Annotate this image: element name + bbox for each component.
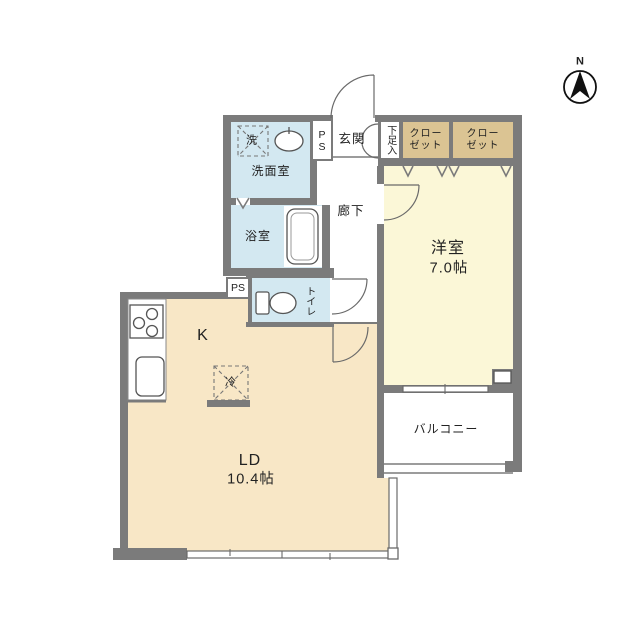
toilet-tank-icon <box>256 292 269 314</box>
washing-machine-label: 洗 <box>246 135 258 148</box>
ld-bottom-window <box>187 551 390 558</box>
ldk-floor <box>128 299 390 553</box>
closet-right-label: クローゼット <box>467 129 500 152</box>
refrigerator-label: 冷 <box>225 377 237 390</box>
corridor-label: 廊下 <box>337 204 364 218</box>
compass-icon <box>564 71 596 103</box>
kitchen-sink-icon <box>136 357 164 396</box>
living-dining-label: LD <box>239 452 261 470</box>
ps-upper-label: PS <box>316 129 328 153</box>
balcony-label: バルコニー <box>414 423 479 437</box>
kitchen-label: K <box>197 327 209 345</box>
floor-plan-drawing <box>0 0 640 640</box>
bathroom-label: 浴室 <box>245 230 271 244</box>
floor-plan: 洗 洗面室 PS 玄関 下足入 クローゼット クローゼット 浴室 廊下 洋室 7… <box>0 0 640 640</box>
toilet-bowl-icon <box>270 293 296 314</box>
pillar-box <box>494 371 511 383</box>
window-end-box <box>388 548 398 559</box>
toilet-label: トイレ <box>303 286 315 316</box>
ps-lower-label: PS <box>231 282 245 294</box>
ld-side-window <box>389 478 397 550</box>
toilet-door-arc <box>332 279 367 314</box>
closet-left-label: クローゼット <box>410 129 443 152</box>
entrance-label: 玄関 <box>338 132 365 146</box>
compass-north-label: N <box>576 56 584 69</box>
entrance-door-arc <box>331 75 374 118</box>
western-room-size: 7.0帖 <box>430 261 469 278</box>
living-dining-size: 10.4帖 <box>227 472 275 489</box>
shoe-storage-label: 下足入 <box>384 125 396 155</box>
western-room-label: 洋室 <box>431 240 465 258</box>
washroom-floor <box>231 122 313 198</box>
room-floors <box>128 122 513 553</box>
washroom-label: 洗面室 <box>251 165 290 179</box>
